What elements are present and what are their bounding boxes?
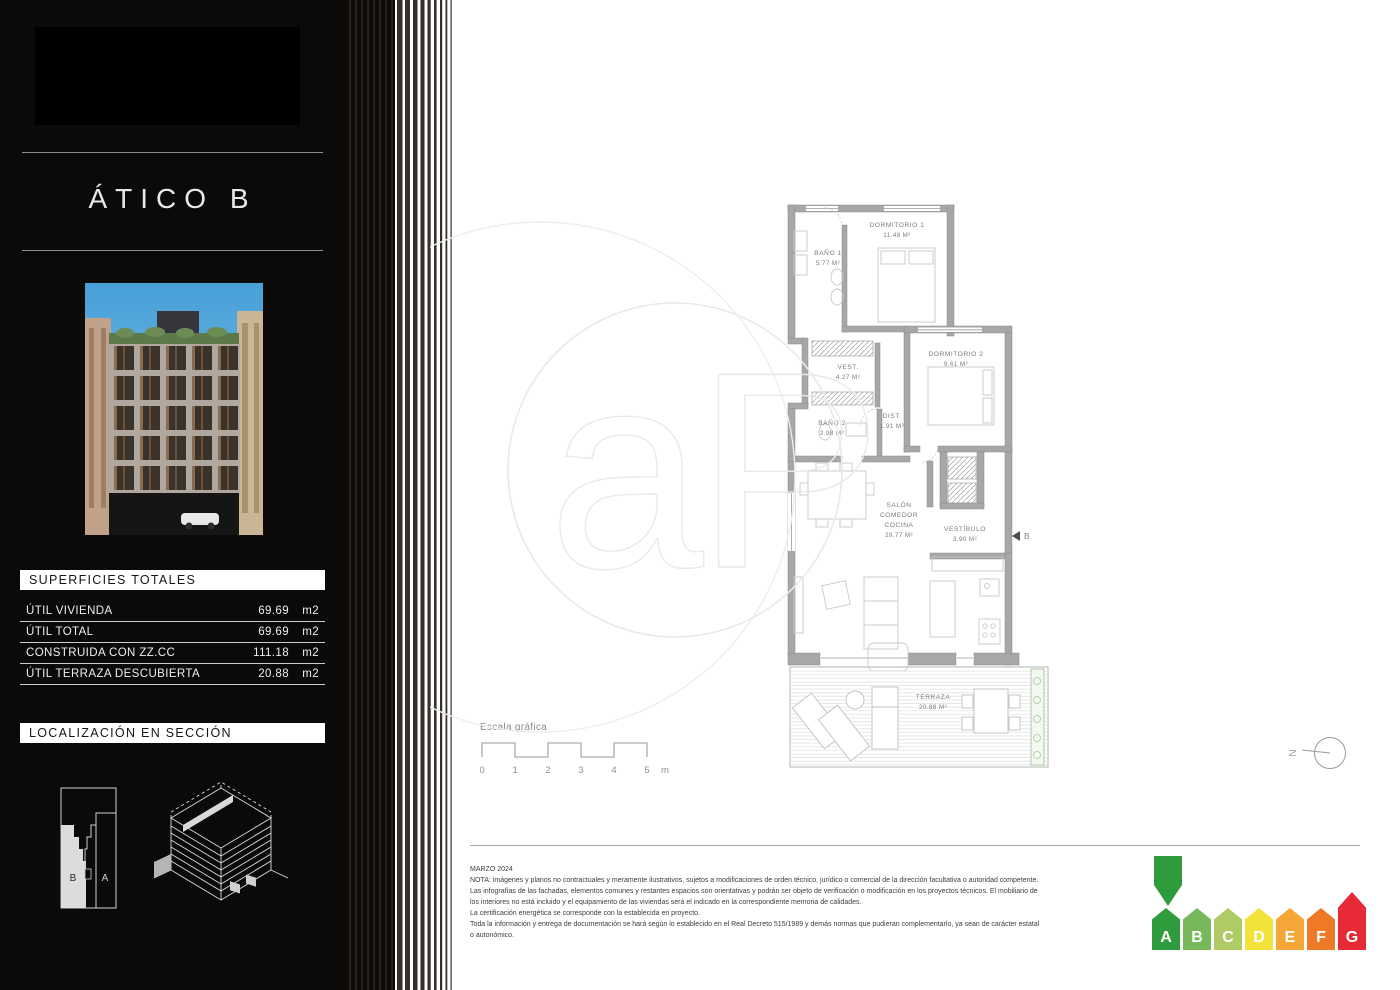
divider — [22, 152, 323, 153]
row-unit: m2 — [289, 647, 319, 659]
surfaces-header: SUPERFICIES TOTALES — [20, 570, 325, 590]
scale-title: Escala gráfica — [480, 722, 690, 733]
room-label-terraza: TERRAZA 20.88 M² — [916, 693, 951, 712]
table-row: CONSTRUIDA CON ZZ.CC 111.18 m2 — [20, 643, 325, 664]
content-divider — [470, 845, 1360, 846]
row-unit: m2 — [289, 605, 319, 617]
energy-badge-e: E — [1276, 908, 1304, 950]
disclaimer-line: Toda la información y entrega de documen… — [470, 919, 1160, 930]
entrance-arrow-icon — [1012, 531, 1020, 541]
scale-bar: Escala gráfica 0 1 2 3 4 5 m — [480, 722, 690, 782]
entrance-label: B — [1024, 531, 1030, 541]
logo-placeholder — [35, 27, 300, 125]
location-header: LOCALIZACIÓN EN SECCIÓN — [20, 723, 325, 743]
row-unit: m2 — [289, 626, 319, 638]
disclaimer-line: NOTA: imágenes y planos no contractuales… — [470, 875, 1160, 886]
section-diagram: B A — [58, 783, 136, 915]
room-label-bano1: BAÑO 1 5.77 M² — [814, 249, 842, 268]
divider — [22, 250, 323, 251]
energy-badge-f: F — [1307, 908, 1335, 950]
disclaimer: MARZO 2024 NOTA: imágenes y planos no co… — [470, 864, 1160, 941]
disclaimer-line: Las infografías de las fachadas, element… — [470, 886, 1160, 897]
energy-badge-b: B — [1183, 908, 1211, 950]
axonometric-diagram — [146, 766, 294, 918]
disclaimer-line: La certificación energética se correspon… — [470, 908, 1160, 919]
stripes-decoration — [345, 0, 457, 990]
row-label: CONSTRUIDA CON ZZ.CC — [26, 647, 243, 659]
row-value: 69.69 — [243, 626, 289, 638]
disclaimer-line: los interiores no está incluido y el equ… — [470, 897, 1160, 908]
svg-text:2: 2 — [545, 765, 550, 776]
row-value: 111.18 — [243, 647, 289, 659]
svg-text:3: 3 — [578, 765, 583, 776]
row-label: ÚTIL VIVIENDA — [26, 605, 243, 617]
disclaimer-line: o autonómico. — [470, 930, 1160, 941]
entrance-marker: B — [1012, 531, 1030, 541]
svg-text:m: m — [661, 765, 669, 776]
scale-ruler: 0 1 2 3 4 5 m — [480, 733, 680, 777]
compass: N — [1288, 722, 1352, 786]
row-unit: m2 — [289, 668, 319, 680]
energy-badge-d: D — [1245, 908, 1273, 950]
room-label-bano2: BAÑO 2 2.98 M² — [818, 419, 846, 438]
unit-b-label: B — [70, 873, 77, 884]
row-value: 20.88 — [243, 668, 289, 680]
unit-a-label: A — [102, 873, 109, 884]
row-label: ÚTIL TOTAL — [26, 626, 243, 638]
building-photo — [85, 283, 263, 535]
brochure-page: ÁTICO B — [0, 0, 1400, 990]
room-label-dormitorio1: DORMITORIO 1 11.48 M² — [870, 221, 925, 240]
svg-text:4: 4 — [611, 765, 616, 776]
page-title: ÁTICO B — [0, 183, 345, 215]
energy-badge-a: A — [1152, 908, 1180, 950]
table-row: ÚTIL TERRAZA DESCUBIERTA 20.88 m2 — [20, 664, 325, 685]
svg-text:5: 5 — [644, 765, 649, 776]
room-label-salon: SALÓN COMEDOR COCINA 29.77 M² — [880, 501, 918, 540]
table-row: ÚTIL TOTAL 69.69 m2 — [20, 622, 325, 643]
compass-label: N — [1288, 749, 1299, 756]
energy-badges: A B C D E F G — [1152, 892, 1369, 950]
room-label-dormitorio2: DORMITORIO 2 9.61 M² — [929, 350, 984, 369]
row-value: 69.69 — [243, 605, 289, 617]
floor-plan-drawing — [780, 195, 1070, 775]
svg-text:0: 0 — [480, 765, 485, 776]
row-label: ÚTIL TERRAZA DESCUBIERTA — [26, 668, 243, 680]
floor-plan: DORMITORIO 1 11.48 M² BAÑO 1 5.77 M² VES… — [780, 195, 1070, 775]
table-row: ÚTIL VIVIENDA 69.69 m2 — [20, 601, 325, 622]
surfaces-table: ÚTIL VIVIENDA 69.69 m2 ÚTIL TOTAL 69.69 … — [20, 601, 325, 685]
room-label-vestibulo: VESTÍBULO 3.90 M² — [944, 525, 986, 544]
energy-badge-c: C — [1214, 908, 1242, 950]
svg-text:1: 1 — [512, 765, 517, 776]
footer-date: MARZO 2024 — [470, 864, 1160, 875]
energy-rating: A B C D E F G — [1152, 856, 1384, 950]
room-label-vest: VEST. 4.27 M² — [836, 363, 860, 382]
energy-badge-g: G — [1338, 892, 1366, 950]
room-label-dist: DIST. 1.91 M² — [880, 412, 904, 431]
sidebar: ÁTICO B — [0, 0, 345, 990]
